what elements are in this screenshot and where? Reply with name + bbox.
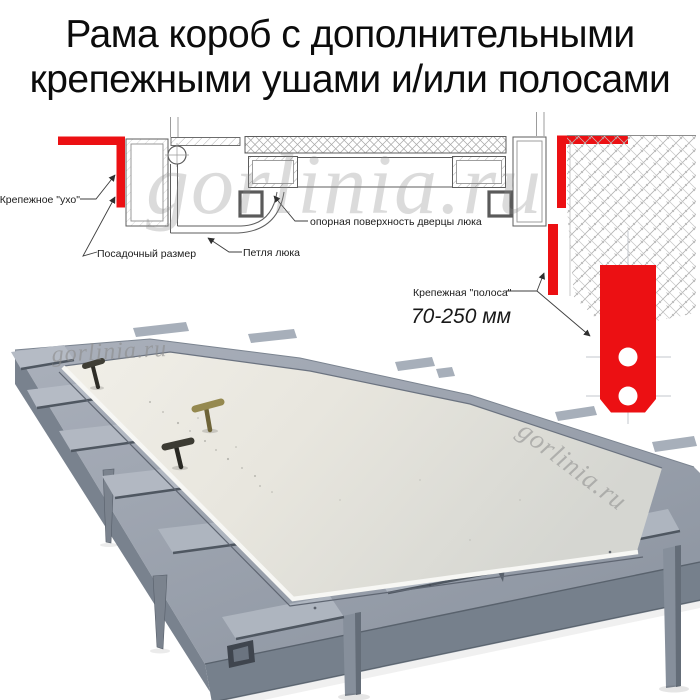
label-fixing-ear: Крепежное "ухо" [0, 194, 80, 206]
label-fixing-strip: Крепежная "полоса" [413, 287, 512, 299]
label-seat-size: Посадочный размер [97, 248, 196, 260]
strip-hole-bottom [619, 387, 638, 406]
strip-hole-top [619, 348, 638, 367]
product-photo: gorlinia.ru gorlinia.ru [11, 322, 700, 700]
watermark-top: gorlinia.ru [146, 136, 543, 232]
product-illustration: Рама короб с дополнительными крепежными … [0, 0, 700, 700]
fixing-strip-small [548, 224, 558, 295]
label-strip-range: 70-250 мм [411, 305, 511, 328]
illustration-svg: Крепежное "ухо" Посадочный размер Петля … [0, 0, 700, 700]
label-hinge: Петля люка [243, 247, 300, 259]
